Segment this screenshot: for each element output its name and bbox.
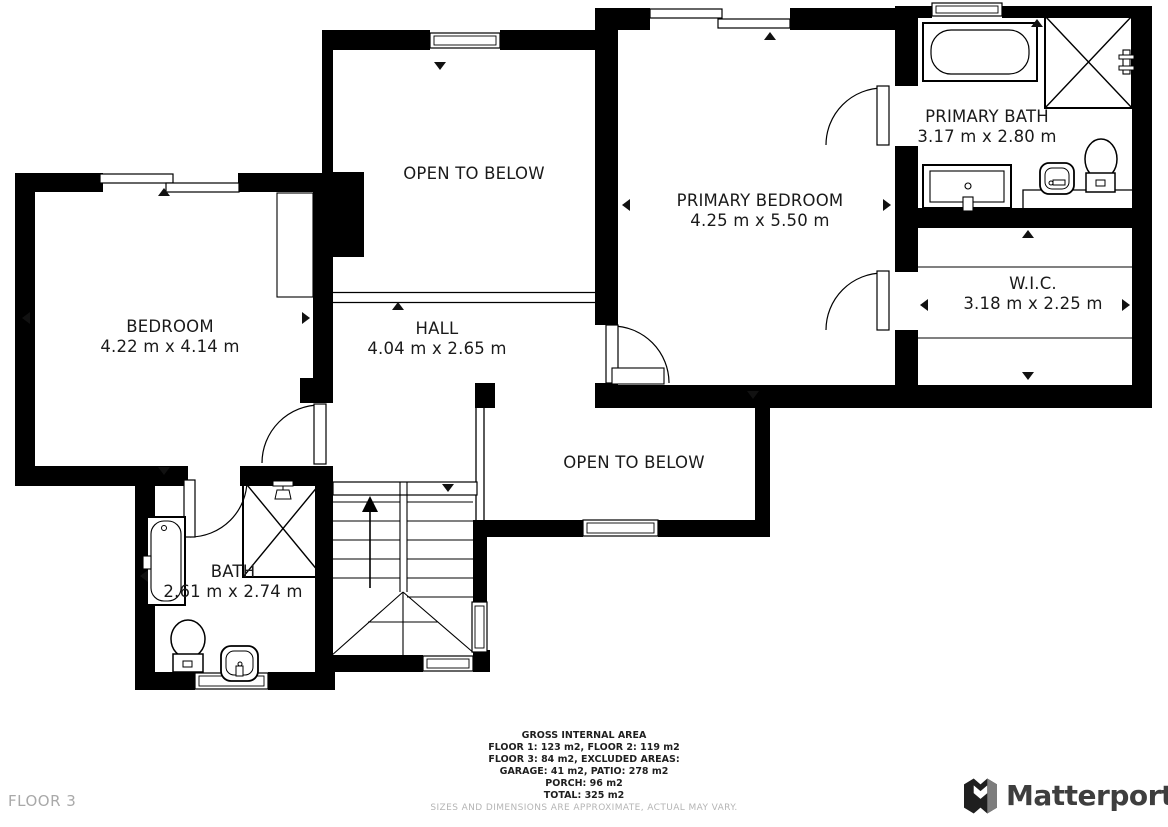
room-name: PRIMARY BEDROOM bbox=[677, 191, 844, 211]
room-label-open-to-below-lower: OPEN TO BELOW bbox=[563, 453, 705, 473]
footer-title: GROSS INTERNAL AREA bbox=[0, 730, 1168, 742]
window-primary-bedroom-left bbox=[650, 9, 722, 18]
room-label-bath: BATH 2.61 m x 2.74 m bbox=[163, 562, 302, 602]
room-dims: 2.61 m x 2.74 m bbox=[163, 582, 302, 602]
toilet-icon bbox=[1085, 139, 1117, 192]
room-name: BATH bbox=[163, 562, 302, 582]
room-name: OPEN TO BELOW bbox=[403, 164, 545, 183]
room-label-bedroom: BEDROOM 4.22 m x 4.14 m bbox=[100, 317, 239, 357]
window-bedroom-top-right bbox=[166, 183, 239, 192]
footer-line: FLOOR 1: 123 m2, FLOOR 2: 119 m2 bbox=[0, 742, 1168, 754]
room-name: BEDROOM bbox=[100, 317, 239, 337]
window-bedroom-top-left bbox=[100, 174, 173, 183]
shower-icon bbox=[1045, 16, 1134, 108]
window-primary-bedroom-right bbox=[718, 19, 790, 28]
matterport-logo: Matterport bbox=[964, 776, 1168, 816]
matterport-logo-icon bbox=[964, 778, 997, 814]
sink-icon bbox=[1040, 163, 1074, 194]
room-name: PRIMARY BATH bbox=[917, 107, 1056, 127]
matterport-logo-text: Matterport bbox=[1006, 776, 1168, 816]
door-bath bbox=[184, 480, 247, 537]
room-dims: 3.18 m x 2.25 m bbox=[963, 294, 1102, 314]
room-name: W.I.C. bbox=[963, 274, 1102, 294]
sink-icon bbox=[221, 646, 258, 681]
room-dims: 3.17 m x 2.80 m bbox=[917, 127, 1056, 147]
room-label-primary-bath: PRIMARY BATH 3.17 m x 2.80 m bbox=[917, 107, 1056, 147]
room-label-wic: W.I.C. 3.18 m x 2.25 m bbox=[963, 274, 1102, 314]
vanity-sink-icon bbox=[923, 165, 1011, 211]
room-dims: 4.22 m x 4.14 m bbox=[100, 337, 239, 357]
room-name: OPEN TO BELOW bbox=[563, 453, 705, 472]
stairs-up-arrow-icon bbox=[362, 496, 378, 512]
stairs-icon bbox=[331, 482, 477, 656]
door-wic bbox=[826, 271, 889, 330]
room-name: HALL bbox=[367, 319, 506, 339]
footer-line: FLOOR 3: 84 m2, EXCLUDED AREAS: bbox=[0, 754, 1168, 766]
room-label-hall: HALL 4.04 m x 2.65 m bbox=[367, 319, 506, 359]
bedroom-closet bbox=[277, 193, 313, 297]
door-bedroom bbox=[262, 404, 326, 464]
primary-bedroom-cabinet bbox=[612, 368, 664, 384]
room-dims: 4.04 m x 2.65 m bbox=[367, 339, 506, 359]
room-dims: 4.25 m x 5.50 m bbox=[677, 211, 844, 231]
bathtub-icon bbox=[923, 23, 1037, 81]
room-label-primary-bedroom: PRIMARY BEDROOM 4.25 m x 5.50 m bbox=[677, 191, 844, 231]
door-primary-bath bbox=[826, 86, 889, 145]
toilet-icon bbox=[171, 620, 205, 672]
room-label-open-to-below-top: OPEN TO BELOW bbox=[403, 164, 545, 184]
floor-label: FLOOR 3 bbox=[8, 792, 76, 810]
